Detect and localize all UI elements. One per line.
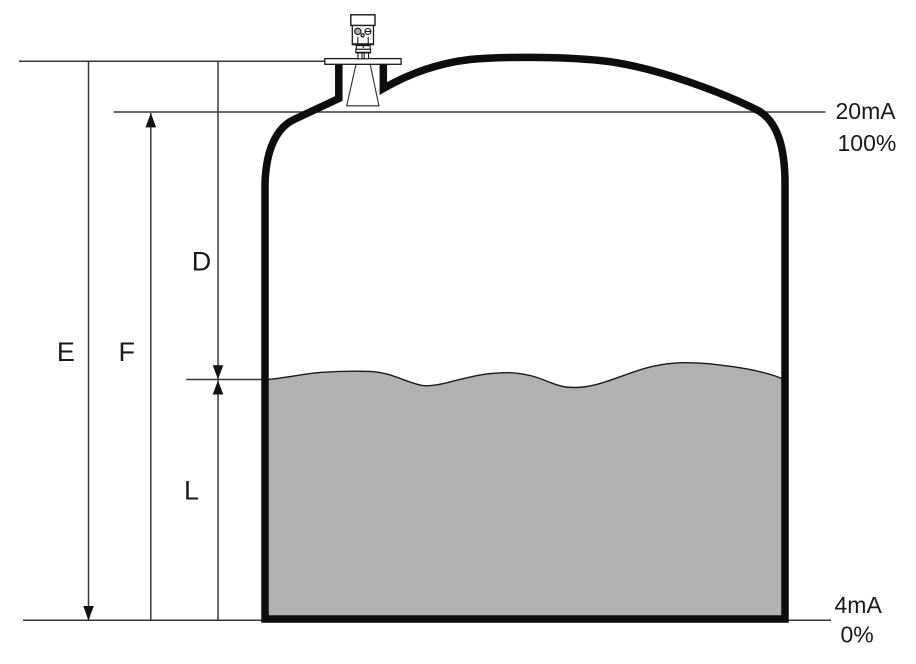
svg-text:L: L xyxy=(184,476,199,506)
svg-text:0%: 0% xyxy=(841,622,874,648)
svg-text:F: F xyxy=(119,337,136,367)
svg-text:20mA: 20mA xyxy=(836,98,897,124)
svg-text:4mA: 4mA xyxy=(835,592,883,618)
svg-text:100%: 100% xyxy=(838,130,897,156)
svg-text:D: D xyxy=(192,247,212,277)
svg-text:E: E xyxy=(57,337,75,367)
